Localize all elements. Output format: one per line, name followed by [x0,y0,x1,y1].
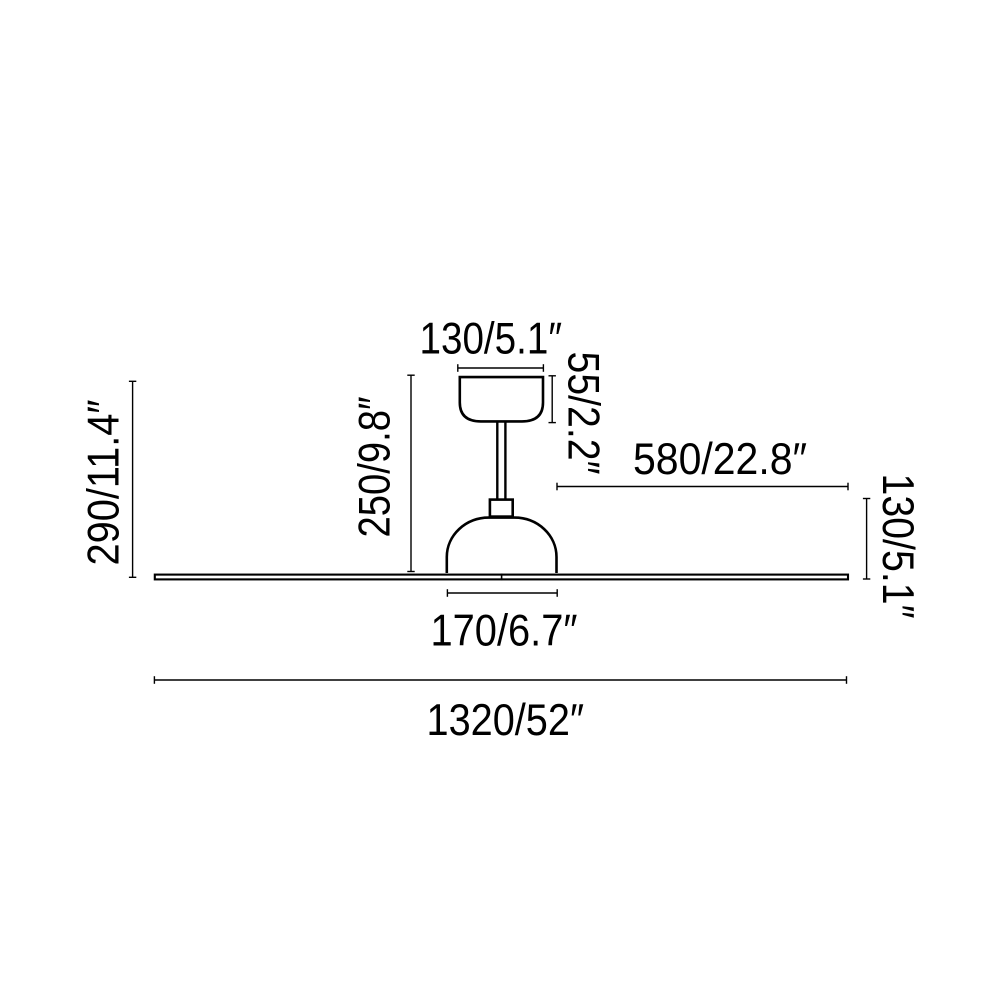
svg-text:130/5.1″: 130/5.1″ [420,314,563,363]
svg-text:290/11.4″: 290/11.4″ [79,400,128,566]
svg-text:580/22.8″: 580/22.8″ [633,435,807,484]
svg-text:250/9.8″: 250/9.8″ [350,397,399,538]
svg-text:1320/52″: 1320/52″ [427,696,585,745]
svg-text:170/6.7″: 170/6.7″ [431,607,578,656]
svg-text:130/5.1″: 130/5.1″ [873,474,922,619]
svg-text:55/2.2″: 55/2.2″ [559,352,608,475]
